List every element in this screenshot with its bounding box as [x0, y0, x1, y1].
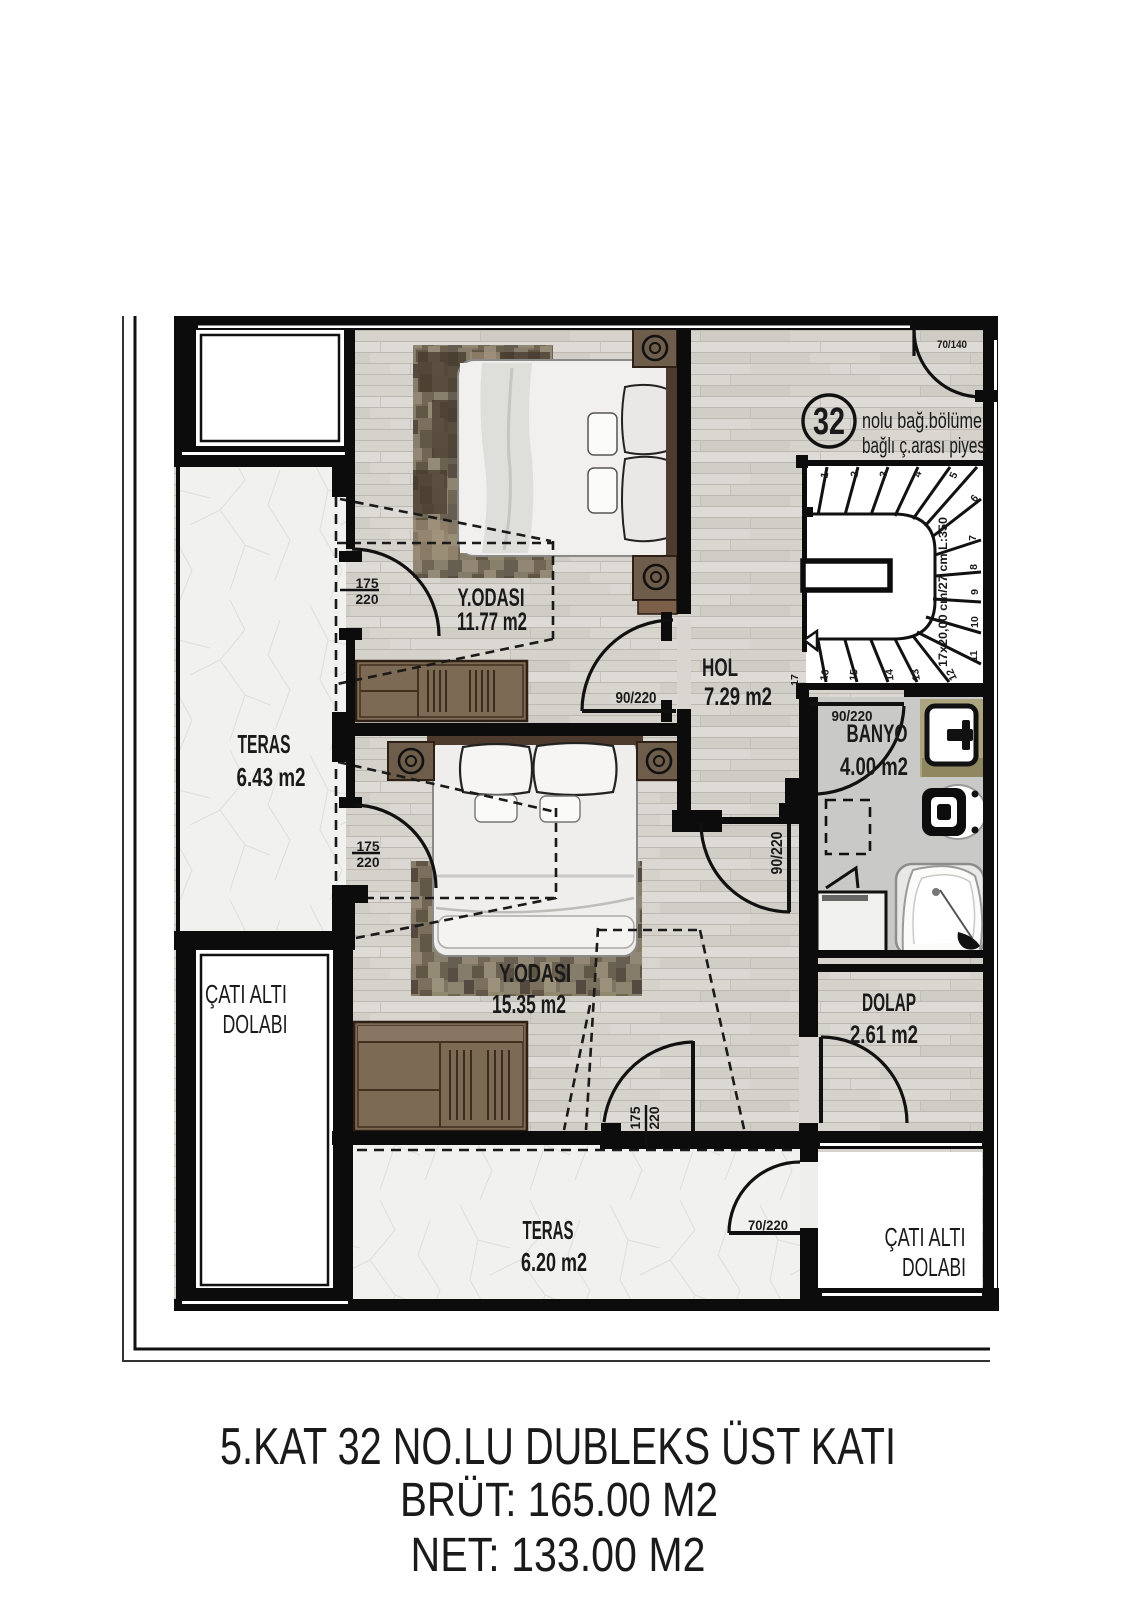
svg-text:7.29 m2: 7.29 m2	[704, 683, 772, 711]
svg-text:17: 17	[789, 674, 801, 686]
svg-text:220: 220	[357, 854, 380, 870]
svg-text:ÇATI ALTI: ÇATI ALTI	[205, 979, 287, 1009]
svg-text:2.61 m2: 2.61 m2	[850, 1021, 918, 1049]
svg-text:15: 15	[848, 669, 861, 682]
svg-text:175: 175	[356, 575, 379, 591]
svg-text:220: 220	[356, 591, 379, 607]
svg-text:13: 13	[909, 668, 923, 682]
svg-text:10: 10	[969, 616, 981, 628]
svg-text:DOLABI: DOLABI	[223, 1009, 288, 1039]
svg-text:TERAS: TERAS	[238, 729, 291, 759]
svg-text:15.35 m2: 15.35 m2	[492, 989, 566, 1019]
svg-text:16: 16	[818, 668, 832, 682]
svg-text:nolu bağ.bölüme: nolu bağ.bölüme	[862, 408, 982, 433]
svg-text:220: 220	[646, 1106, 662, 1129]
svg-text:4.00 m2: 4.00 m2	[840, 753, 908, 781]
svg-text:7: 7	[967, 535, 979, 541]
svg-text:11: 11	[968, 650, 980, 661]
svg-text:9: 9	[969, 589, 981, 595]
svg-text:DOLABI: DOLABI	[902, 1252, 966, 1282]
svg-text:NET: 133.00 M2: NET: 133.00 M2	[411, 1529, 706, 1582]
svg-text:8: 8	[968, 564, 980, 570]
svg-text:70/140: 70/140	[937, 339, 967, 351]
svg-text:70/220: 70/220	[748, 1217, 788, 1233]
svg-text:TERAS: TERAS	[523, 1215, 574, 1245]
svg-text:BRÜT: 165.00 M2: BRÜT: 165.00 M2	[400, 1474, 718, 1527]
svg-text:6.20 m2: 6.20 m2	[521, 1247, 587, 1277]
svg-text:BANYO: BANYO	[847, 720, 908, 748]
svg-text:90/220: 90/220	[616, 690, 657, 707]
svg-text:ÇATI ALTI: ÇATI ALTI	[885, 1222, 966, 1252]
svg-text:bağlı ç.arası piyes: bağlı ç.arası piyes	[862, 433, 985, 458]
svg-text:175: 175	[357, 838, 380, 854]
svg-text:90/220: 90/220	[769, 831, 786, 874]
svg-text:175: 175	[627, 1106, 643, 1129]
svg-text:DOLAP: DOLAP	[862, 989, 916, 1017]
svg-text:11.77 m2: 11.77 m2	[457, 608, 527, 636]
svg-text:HOL: HOL	[702, 654, 738, 682]
svg-text:Y.ODASI: Y.ODASI	[499, 958, 571, 988]
svg-text:5.KAT 32 NO.LU DUBLEKS ÜST KAT: 5.KAT 32 NO.LU DUBLEKS ÜST KATI	[220, 1418, 896, 1476]
svg-text:6.43 m2: 6.43 m2	[237, 762, 306, 792]
svg-text:32: 32	[813, 401, 845, 443]
svg-text:17x20,00 cm/27 cm L:350: 17x20,00 cm/27 cm L:350	[938, 517, 950, 667]
svg-text:14: 14	[883, 668, 896, 681]
